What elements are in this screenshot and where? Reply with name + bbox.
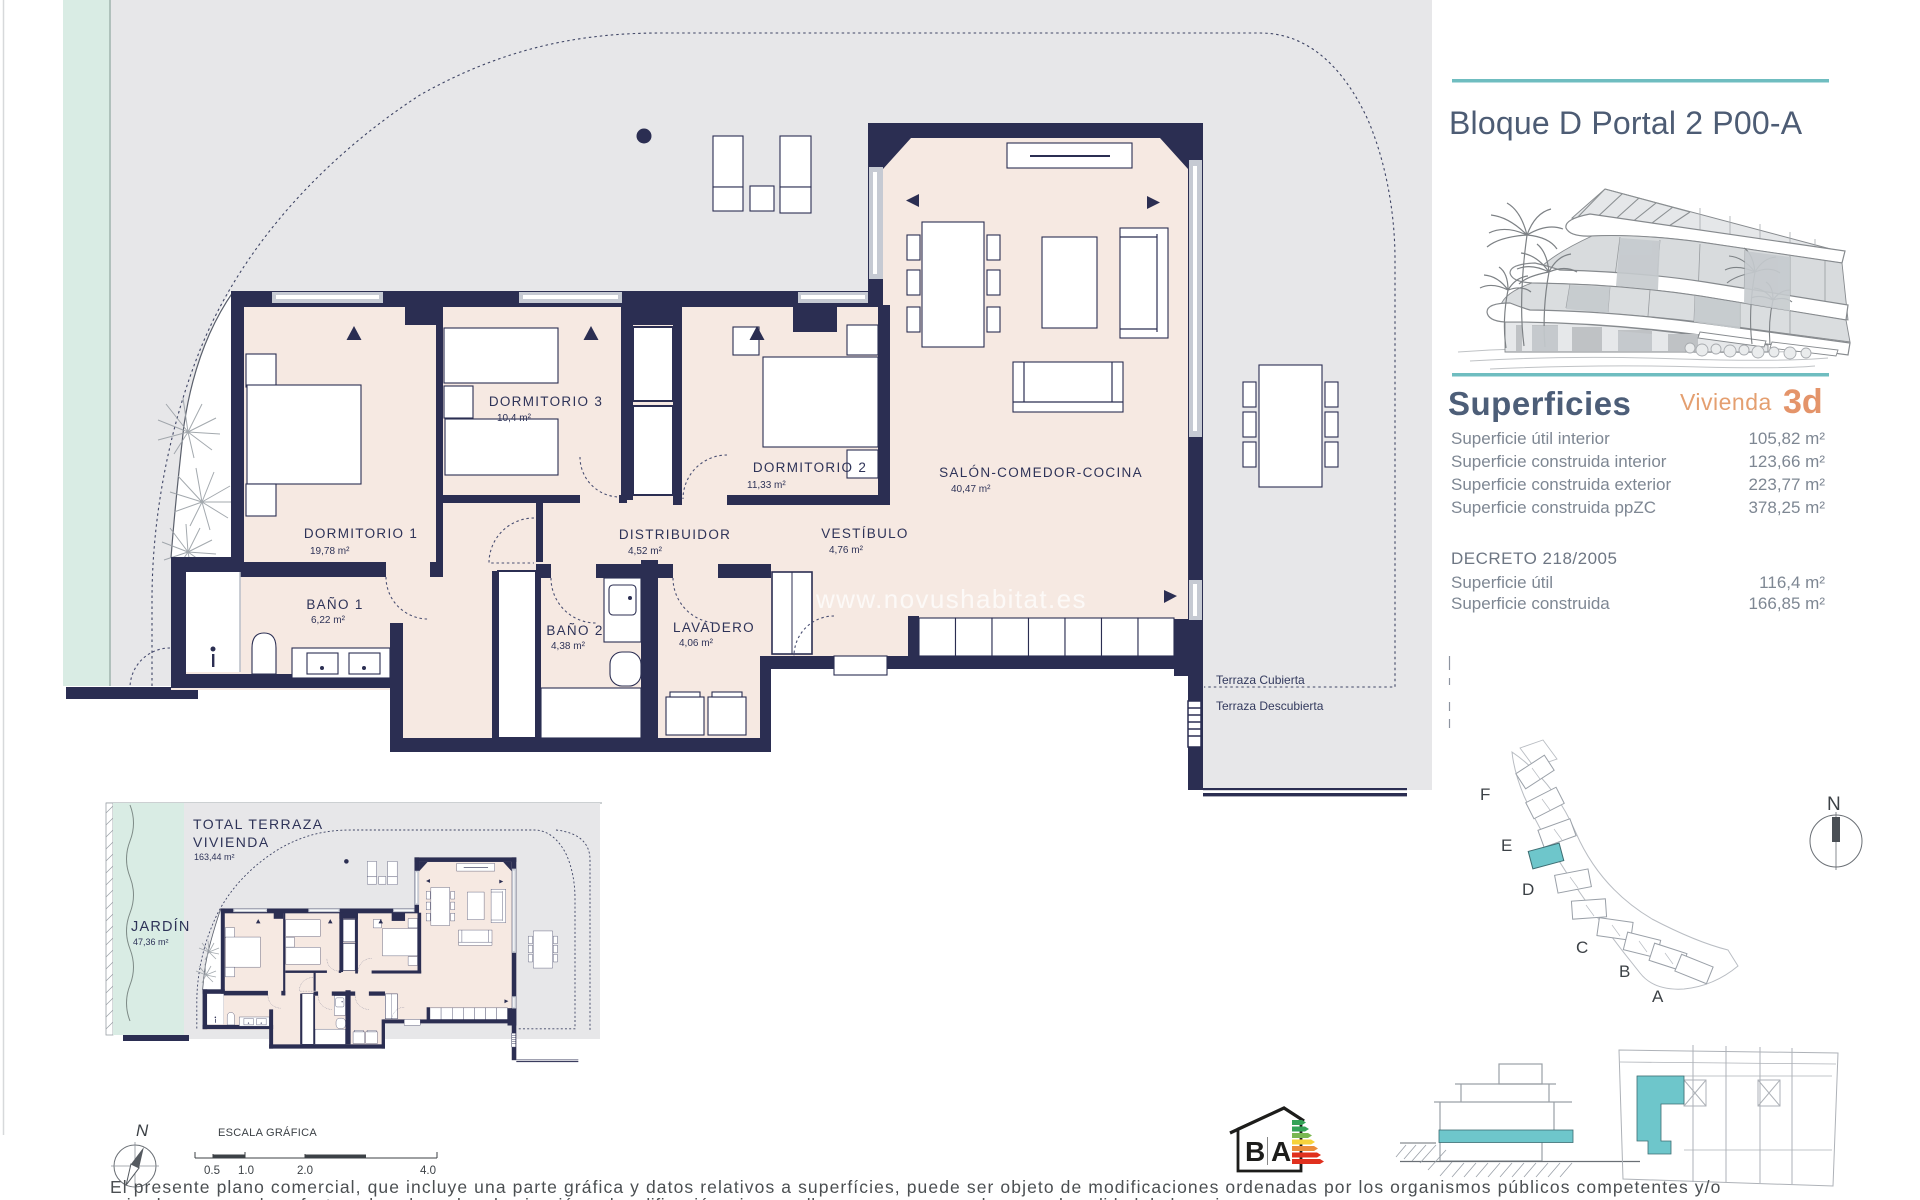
- svg-text:6,22 m²: 6,22 m²: [311, 615, 346, 626]
- svg-text:Superficie construida: Superficie construida: [1451, 594, 1610, 613]
- svg-text:DISTRIBUIDOR: DISTRIBUIDOR: [619, 527, 731, 542]
- svg-text:Superficies: Superficies: [1448, 385, 1631, 422]
- svg-text:N: N: [1827, 794, 1841, 815]
- svg-text:Superficie útil interior: Superficie útil interior: [1451, 429, 1610, 448]
- svg-text:BAÑO 2: BAÑO 2: [546, 623, 603, 638]
- svg-text:4,06 m²: 4,06 m²: [679, 638, 714, 649]
- svg-text:B: B: [1245, 1136, 1265, 1167]
- svg-text:Terraza Descubierta: Terraza Descubierta: [1216, 699, 1324, 713]
- svg-text:A: A: [1271, 1136, 1291, 1167]
- svg-text:116,4 m²: 116,4 m²: [1759, 573, 1825, 592]
- svg-text:DECRETO 218/2005: DECRETO 218/2005: [1451, 549, 1617, 568]
- svg-text:D: D: [1522, 880, 1534, 899]
- svg-text:105,82 m²: 105,82 m²: [1748, 429, 1825, 448]
- svg-text:3d: 3d: [1783, 383, 1823, 421]
- svg-text:Vivienda: Vivienda: [1680, 389, 1772, 415]
- svg-text:4.0: 4.0: [420, 1165, 436, 1177]
- svg-text:19,78 m²: 19,78 m²: [310, 546, 350, 557]
- svg-text:ESCALA GRÁFICA: ESCALA GRÁFICA: [218, 1126, 317, 1139]
- svg-text:Terraza Cubierta: Terraza Cubierta: [1216, 673, 1305, 687]
- svg-text:378,25 m²: 378,25 m²: [1748, 498, 1825, 517]
- svg-text:10,4 m²: 10,4 m²: [497, 413, 532, 424]
- svg-text:Superficie construida exterior: Superficie construida exterior: [1451, 475, 1672, 494]
- svg-text:47,36 m²: 47,36 m²: [133, 937, 169, 947]
- svg-text:El presente plano comercial, q: El presente plano comercial, que incluye…: [110, 1177, 1721, 1197]
- svg-text:40,47 m²: 40,47 m²: [951, 484, 991, 495]
- svg-text:Bloque D Portal 2 P00-A: Bloque D Portal 2 P00-A: [1449, 105, 1803, 141]
- svg-text:223,77 m²: 223,77 m²: [1748, 475, 1825, 494]
- svg-text:DORMITORIO 1: DORMITORIO 1: [304, 526, 418, 541]
- svg-text:2.0: 2.0: [297, 1165, 313, 1177]
- svg-text:N: N: [136, 1121, 149, 1140]
- svg-text:SALÓN-COMEDOR-COCINA: SALÓN-COMEDOR-COCINA: [939, 465, 1143, 480]
- svg-text:TOTAL TERRAZA: TOTAL TERRAZA: [193, 816, 323, 832]
- svg-text:DORMITORIO 2: DORMITORIO 2: [753, 460, 867, 475]
- svg-text:VESTÍBULO: VESTÍBULO: [821, 526, 908, 541]
- svg-text:JARDÍN: JARDÍN: [131, 918, 191, 935]
- svg-text:166,85 m²: 166,85 m²: [1748, 594, 1825, 613]
- svg-text:C: C: [1576, 938, 1588, 957]
- svg-text:F: F: [1480, 785, 1490, 804]
- svg-text:4,38 m²: 4,38 m²: [551, 641, 586, 652]
- svg-text:4,52 m²: 4,52 m²: [628, 546, 663, 557]
- svg-text:Superficie construida interior: Superficie construida interior: [1451, 452, 1667, 471]
- svg-text:123,66 m²: 123,66 m²: [1748, 452, 1825, 471]
- svg-text:163,44 m²: 163,44 m²: [194, 852, 235, 862]
- svg-text:DORMITORIO 3: DORMITORIO 3: [489, 394, 603, 409]
- svg-text:Superficie útil: Superficie útil: [1451, 573, 1553, 592]
- svg-text:0.5: 0.5: [204, 1165, 220, 1177]
- svg-text:VIVIENDA: VIVIENDA: [193, 834, 270, 850]
- svg-text:privados que puedan afectar a: privados que puedan afectar a las obras …: [110, 1195, 1269, 1200]
- svg-text:Superficie construida ppZC: Superficie construida ppZC: [1451, 498, 1656, 517]
- svg-text:A: A: [1652, 987, 1664, 1006]
- svg-text:E: E: [1501, 836, 1512, 855]
- svg-text:11,33 m²: 11,33 m²: [747, 480, 786, 491]
- svg-text:B: B: [1619, 962, 1630, 981]
- svg-text:www.novushabitat.es: www.novushabitat.es: [815, 584, 1087, 614]
- svg-text:1.0: 1.0: [238, 1165, 254, 1177]
- svg-text:4,76 m²: 4,76 m²: [829, 545, 864, 556]
- svg-text:LAVADERO: LAVADERO: [673, 620, 755, 635]
- svg-text:BAÑO 1: BAÑO 1: [306, 597, 363, 612]
